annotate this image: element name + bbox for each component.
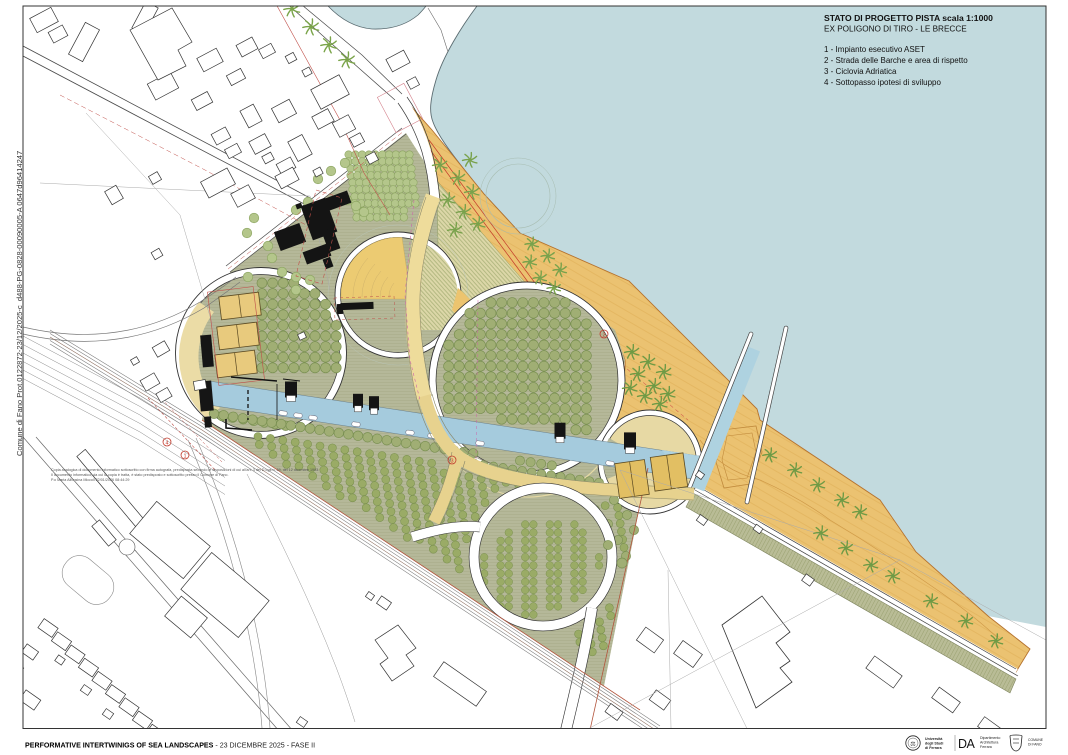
svg-text:3 - Ciclovia Adriatica: 3 - Ciclovia Adriatica [824, 67, 897, 76]
svg-text:Comune di Fano Prot.0122872-2: Comune di Fano Prot.0122872-23/12/2025-c… [15, 151, 24, 456]
svg-text:DA: DA [958, 737, 976, 751]
svg-text:Architettura: Architettura [980, 741, 998, 745]
svg-text:4: 4 [165, 441, 168, 447]
svg-text:Dipartimento: Dipartimento [980, 736, 1000, 740]
svg-text:degli Studi: degli Studi [925, 742, 943, 746]
svg-text:Ferrara: Ferrara [980, 745, 992, 749]
svg-text:COMUNE: COMUNE [1028, 738, 1044, 742]
svg-text:P.o Maria Alfonsina Miccoli 22: P.o Maria Alfonsina Miccoli 22/01/2026 0… [51, 478, 129, 482]
svg-text:1 - Impianto esecutivo ASET: 1 - Impianto esecutivo ASET [824, 45, 925, 54]
svg-text:DI FANO: DI FANO [1028, 743, 1042, 747]
svg-text:2: 2 [602, 333, 605, 339]
svg-text:Copia analogica di documento i: Copia analogica di documento informatico… [51, 468, 319, 472]
svg-text:EX POLIGONO DI TIRO - LE BRECC: EX POLIGONO DI TIRO - LE BRECCE [824, 25, 967, 34]
svg-text:3: 3 [450, 459, 453, 465]
svg-text:Il documento informatico, da c: Il documento informatico, da cui la copi… [51, 473, 229, 477]
svg-text:STATO DI PROGETTO PISTA scala: STATO DI PROGETTO PISTA scala 1:1000 [824, 13, 993, 23]
svg-text:⚖: ⚖ [910, 741, 916, 748]
svg-text:PERFORMATIVE INTERTWINIGS OF S: PERFORMATIVE INTERTWINIGS OF SEA LANDSCA… [25, 742, 315, 750]
svg-text:di Ferrara: di Ferrara [925, 746, 943, 750]
svg-text:2 - Strada delle Barche e area: 2 - Strada delle Barche e area di rispet… [824, 56, 968, 65]
svg-text:1: 1 [183, 454, 186, 460]
svg-text:4 - Sottopasso ipotesi di svil: 4 - Sottopasso ipotesi di sviluppo [824, 78, 942, 87]
svg-text:Università: Università [925, 737, 942, 741]
